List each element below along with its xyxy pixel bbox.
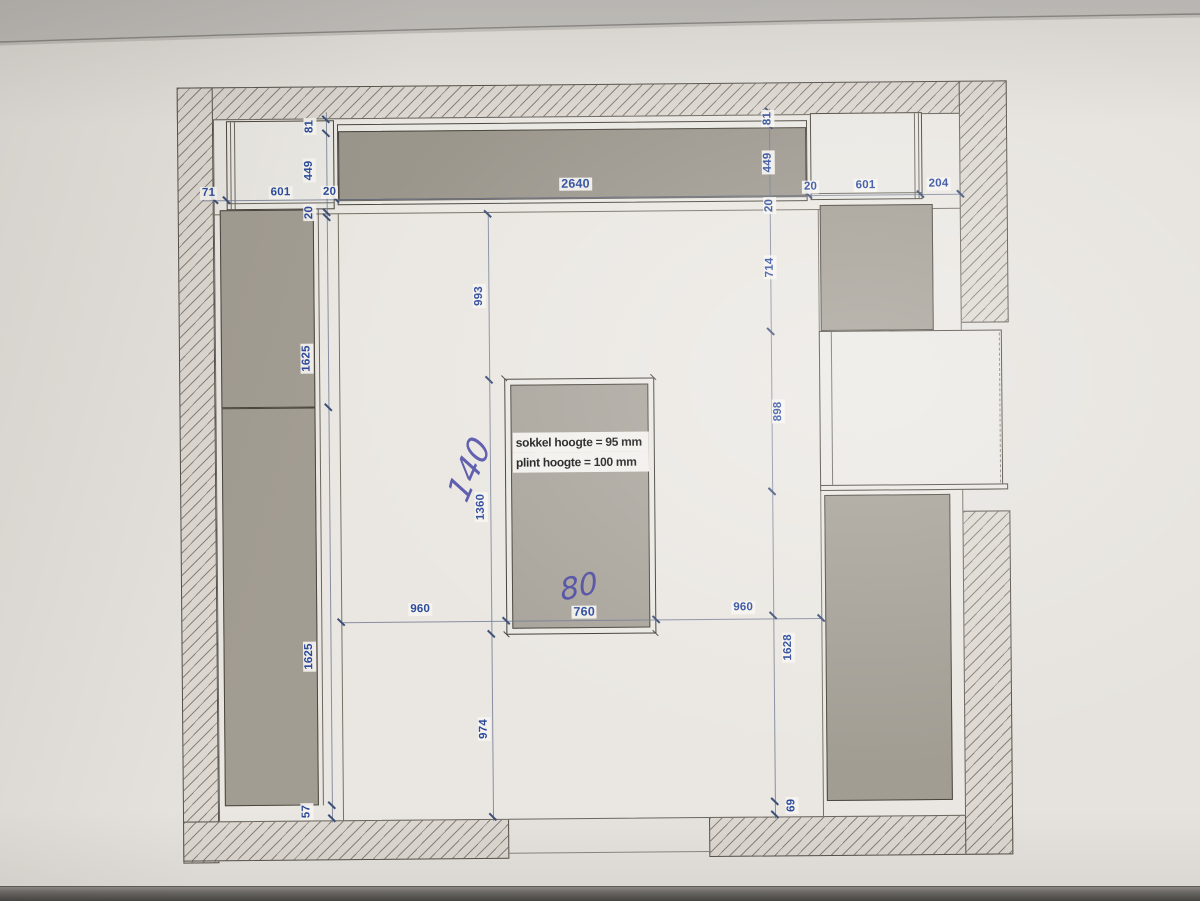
dim-label-71: 71 bbox=[200, 187, 217, 200]
dim-label-960-left: 960 bbox=[408, 603, 432, 616]
floor-plan: sokkel hoogte = 95 mm plint hoogte = 100… bbox=[177, 76, 1016, 865]
dim-label-601-left: 601 bbox=[269, 186, 293, 199]
dim-label-57: 57 bbox=[300, 803, 313, 820]
dim-label-714: 714 bbox=[764, 256, 777, 280]
wall-bottom-left-segment bbox=[183, 819, 509, 862]
cabinet-tall-left-upper bbox=[220, 209, 316, 408]
dim-label-20-left-v: 20 bbox=[303, 204, 316, 221]
appliance-niche bbox=[819, 329, 1003, 491]
dim-label-1625-upper: 1625 bbox=[300, 343, 313, 374]
photo-of-floor-plan: { "island_note": { "line1": "sokkel hoog… bbox=[0, 0, 1200, 900]
dim-label-449-right: 449 bbox=[762, 151, 775, 175]
wall-right-bottom-segment bbox=[962, 510, 1013, 854]
dim-label-760: 760 bbox=[571, 605, 597, 618]
dim-label-204: 204 bbox=[927, 177, 951, 190]
dim-label-20-left: 20 bbox=[321, 186, 338, 199]
island-note-line2: plint hoogte = 100 mm bbox=[513, 452, 649, 473]
dim-label-81-right: 81 bbox=[761, 110, 774, 127]
dim-label-2640: 2640 bbox=[559, 178, 592, 191]
dim-label-69: 69 bbox=[785, 797, 798, 814]
cabinet-tall-left-lower bbox=[221, 407, 318, 806]
dim-label-20-right: 20 bbox=[802, 181, 819, 194]
cabinet-right-upper bbox=[820, 204, 934, 331]
dim-label-993: 993 bbox=[473, 284, 486, 308]
door-threshold-bottom bbox=[509, 851, 709, 854]
dim-label-1628: 1628 bbox=[782, 632, 795, 663]
dim-label-960-right: 960 bbox=[731, 601, 755, 614]
dim-label-449-left: 449 bbox=[303, 159, 316, 183]
dim-label-898: 898 bbox=[772, 399, 785, 423]
wall-right-top-segment bbox=[959, 80, 1009, 322]
dim-label-974: 974 bbox=[478, 717, 491, 741]
desk-surface-bottom-edge bbox=[0, 886, 1200, 901]
dim-label-601-right: 601 bbox=[854, 179, 878, 192]
cabinet-right-lower bbox=[824, 494, 953, 801]
appliance-niche-sill bbox=[820, 483, 1008, 491]
desk-surface-top-edge bbox=[0, 0, 1200, 50]
dim-label-1625-lower: 1625 bbox=[303, 641, 316, 672]
scene: sokkel hoogte = 95 mm plint hoogte = 100… bbox=[0, 0, 1200, 900]
dim-label-81-left: 81 bbox=[303, 118, 316, 135]
dim-label-20-right-v: 20 bbox=[763, 197, 776, 214]
island-note-line1: sokkel hoogte = 95 mm bbox=[513, 432, 649, 453]
